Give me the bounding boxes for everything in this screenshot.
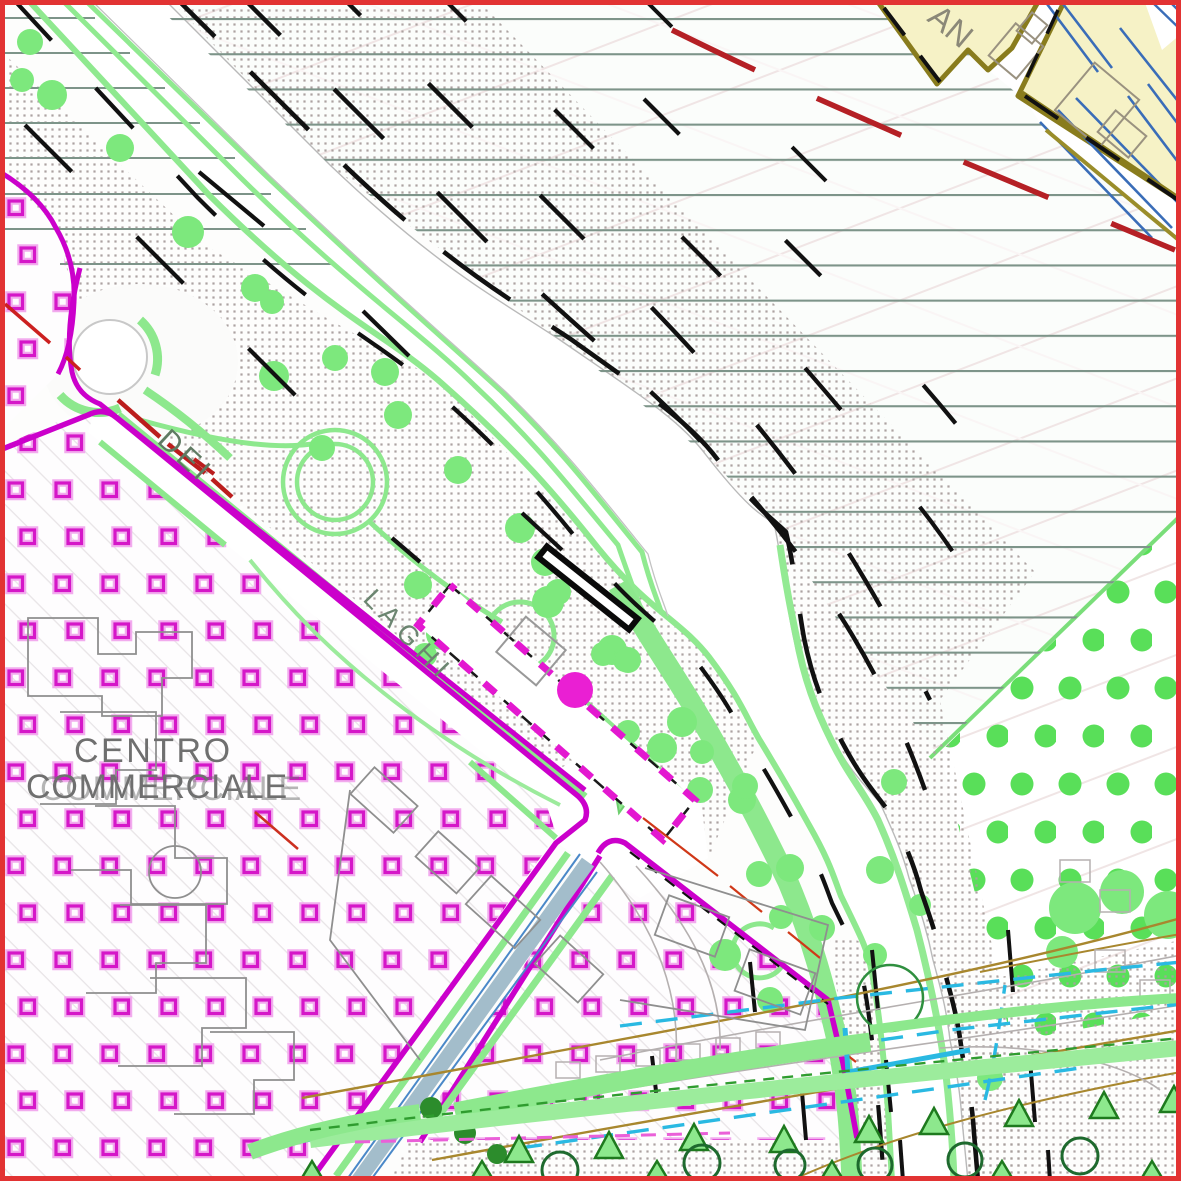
svg-text:COMMERCIALE: COMMERCIALE	[40, 770, 302, 808]
svg-text:CENTRO: CENTRO	[74, 732, 233, 770]
